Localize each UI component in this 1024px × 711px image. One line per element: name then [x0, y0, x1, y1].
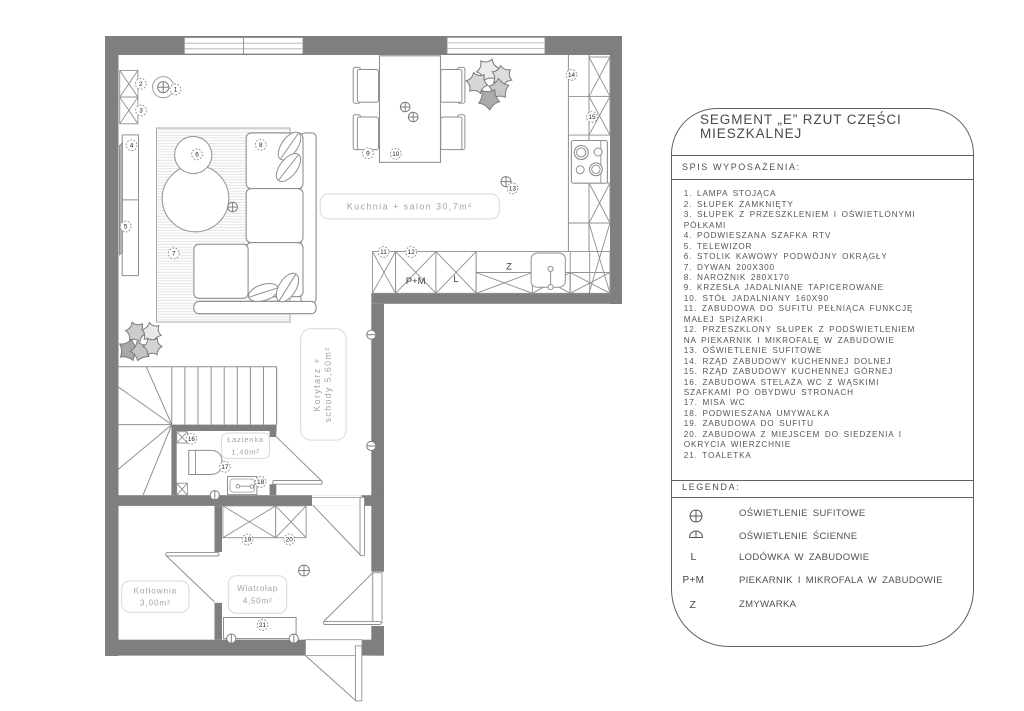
svg-text:16: 16 — [188, 436, 196, 443]
svg-text:18: 18 — [257, 479, 265, 486]
svg-text:13: 13 — [509, 186, 517, 193]
svg-text:Z: Z — [506, 262, 512, 273]
svg-text:Korytarz +: Korytarz + — [312, 357, 322, 411]
svg-text:6: 6 — [195, 152, 199, 159]
svg-text:9: 9 — [366, 150, 370, 157]
svg-text:7: 7 — [172, 251, 176, 258]
svg-text:1,40m²: 1,40m² — [231, 448, 259, 457]
svg-text:12: 12 — [408, 249, 416, 256]
svg-text:11: 11 — [380, 249, 387, 256]
svg-text:schody 5,60m²: schody 5,60m² — [323, 346, 333, 422]
svg-text:Łazienka: Łazienka — [227, 435, 264, 444]
svg-text:Kotłownia: Kotłownia — [134, 586, 178, 595]
svg-text:20: 20 — [286, 537, 294, 544]
svg-text:4: 4 — [130, 142, 134, 149]
svg-text:21: 21 — [259, 622, 267, 629]
svg-text:P+M: P+M — [406, 276, 426, 287]
svg-text:4,50m²: 4,50m² — [243, 597, 273, 606]
svg-text:3,00m²: 3,00m² — [140, 599, 171, 608]
svg-text:19: 19 — [244, 537, 252, 544]
svg-text:3: 3 — [139, 108, 143, 115]
svg-text:L: L — [453, 274, 458, 285]
svg-text:Wiatrołap: Wiatrołap — [237, 584, 278, 593]
svg-text:17: 17 — [221, 464, 229, 471]
svg-text:Kuchnia + salon 30,7m²: Kuchnia + salon 30,7m² — [347, 201, 473, 211]
svg-text:10: 10 — [392, 151, 400, 158]
svg-text:14: 14 — [568, 72, 576, 79]
svg-text:2: 2 — [139, 81, 143, 88]
svg-text:5: 5 — [124, 224, 128, 231]
svg-text:15: 15 — [588, 114, 596, 121]
svg-text:1: 1 — [174, 87, 178, 94]
svg-text:8: 8 — [259, 142, 263, 149]
